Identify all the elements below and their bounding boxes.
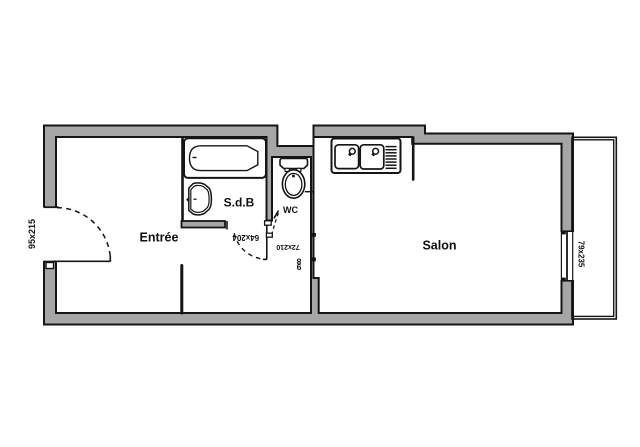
svg-text:Salon: Salon [422, 239, 456, 253]
svg-text:95x215: 95x215 [27, 219, 37, 249]
svg-text:72x210: 72x210 [276, 243, 299, 250]
svg-text:64x204: 64x204 [232, 233, 259, 242]
svg-text:WC: WC [283, 205, 298, 215]
svg-text:79x235: 79x235 [577, 241, 586, 268]
svg-text:9: 9 [296, 262, 301, 272]
svg-text:S.d.B: S.d.B [224, 196, 255, 210]
svg-text:Entrée: Entrée [140, 231, 179, 245]
